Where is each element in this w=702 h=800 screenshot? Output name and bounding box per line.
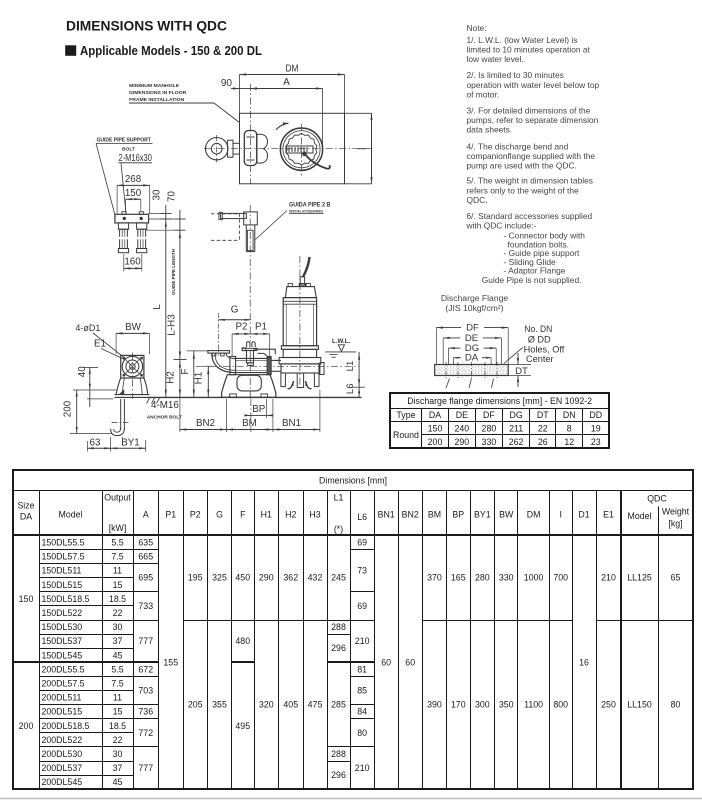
svg-text:BN1: BN1 [282, 418, 301, 429]
svg-text:736: 736 [138, 707, 153, 717]
svg-text:325: 325 [212, 573, 227, 583]
svg-text:DA: DA [465, 353, 479, 364]
svg-text:200DL511: 200DL511 [42, 693, 82, 703]
svg-text:73: 73 [357, 566, 367, 576]
svg-text:BOLT: BOLT [122, 147, 135, 153]
svg-text:L: L [152, 304, 163, 310]
svg-text:320: 320 [259, 700, 274, 710]
svg-text:GUIDE PIPE LENGTH: GUIDE PIPE LENGTH [171, 249, 176, 295]
svg-text:BW: BW [125, 322, 142, 333]
svg-text:200: 200 [428, 437, 443, 447]
svg-text:Discharge flange dimensions [m: Discharge flange dimensions [mm] - EN 10… [407, 396, 592, 406]
svg-text:695: 695 [138, 573, 153, 583]
svg-text:P1: P1 [165, 510, 176, 520]
svg-text:150DL55.5: 150DL55.5 [42, 537, 85, 547]
svg-text:195: 195 [188, 573, 203, 583]
svg-text:Round: Round [393, 430, 419, 440]
svg-text:H3: H3 [309, 510, 320, 520]
svg-text:432: 432 [308, 573, 323, 583]
svg-text:4-øD1: 4-øD1 [75, 323, 100, 333]
svg-text:165: 165 [451, 573, 466, 583]
svg-text:150: 150 [428, 424, 443, 434]
svg-text:pumps, refer to separate dimen: pumps, refer to separate dimension [467, 115, 599, 125]
svg-text:low water level.: low water level. [467, 54, 524, 64]
svg-text:DM: DM [286, 64, 299, 75]
svg-text:Dimensions [mm]: Dimensions [mm] [319, 476, 387, 486]
svg-text:Guide Pipe is not supplied.: Guide Pipe is not supplied. [482, 275, 582, 285]
svg-text:296: 296 [331, 770, 346, 780]
svg-text:210: 210 [601, 573, 616, 583]
svg-text:200: 200 [19, 721, 34, 731]
svg-text:H2: H2 [166, 371, 177, 384]
svg-text:operation with water level bel: operation with water level below top [467, 80, 600, 90]
svg-text:150DL515: 150DL515 [42, 580, 83, 590]
svg-text:H2: H2 [285, 510, 296, 520]
svg-text:[kg]: [kg] [668, 519, 682, 529]
svg-text:665: 665 [138, 552, 153, 562]
svg-text:BW: BW [499, 510, 514, 520]
svg-text:L-H3: L-H3 [167, 314, 178, 336]
svg-text:BN2: BN2 [196, 418, 215, 429]
svg-text:268: 268 [125, 174, 142, 185]
svg-text:800: 800 [553, 700, 568, 710]
svg-text:Applicable Models - 150 & 200: Applicable Models - 150 & 200 DL [80, 44, 262, 58]
svg-text:limited to 10 minutes operatio: limited to 10 minutes operation at [467, 45, 591, 55]
svg-text:8: 8 [567, 424, 572, 434]
svg-text:1100: 1100 [524, 700, 543, 710]
svg-text:3/. For detailed dimensions of: 3/. For detailed dimensions of the [467, 106, 591, 116]
svg-text:15: 15 [113, 580, 123, 590]
svg-text:777: 777 [138, 763, 153, 773]
svg-text:495: 495 [235, 721, 250, 731]
svg-text:5.5: 5.5 [111, 664, 123, 674]
svg-text:G: G [231, 305, 239, 316]
svg-text:19: 19 [591, 424, 601, 434]
svg-text:280: 280 [482, 424, 497, 434]
svg-text:DG: DG [509, 410, 522, 420]
svg-text:90: 90 [221, 78, 233, 89]
svg-text:LL125: LL125 [627, 573, 652, 583]
svg-text:12: 12 [564, 437, 574, 447]
svg-text:A: A [283, 77, 290, 88]
svg-text:6/. Standard accessories suppl: 6/. Standard accessories supplied [467, 211, 593, 221]
svg-text:BP: BP [252, 404, 266, 415]
svg-text:475: 475 [308, 700, 323, 710]
svg-text:288: 288 [331, 622, 346, 632]
svg-text:355: 355 [212, 700, 227, 710]
svg-text:refers only to the weight of t: refers only to the weight of the [467, 185, 580, 195]
svg-text:200DL545: 200DL545 [42, 777, 83, 787]
svg-text:(JIS 10kgf/cm²): (JIS 10kgf/cm²) [445, 303, 503, 313]
svg-text:DM: DM [527, 510, 541, 520]
svg-text:240: 240 [455, 424, 470, 434]
svg-text:L6: L6 [345, 383, 356, 394]
svg-text:7.5: 7.5 [111, 678, 123, 688]
svg-text:296: 296 [331, 643, 346, 653]
svg-text:[kW]: [kW] [109, 523, 127, 533]
svg-text:65: 65 [671, 573, 681, 583]
svg-text:80: 80 [357, 728, 367, 738]
svg-text:Note:: Note: [467, 23, 487, 33]
svg-text:45: 45 [113, 777, 123, 787]
svg-text:QDC: QDC [647, 494, 667, 504]
svg-text:200: 200 [63, 400, 74, 417]
svg-text:E1: E1 [603, 510, 614, 520]
svg-text:L.W.L.: L.W.L. [332, 338, 350, 345]
svg-text:BM: BM [242, 418, 257, 429]
svg-text:300: 300 [475, 700, 490, 710]
svg-text:11: 11 [113, 566, 122, 576]
svg-text:84: 84 [357, 707, 367, 717]
svg-text:ANCHOR BOLT: ANCHOR BOLT [147, 415, 182, 421]
svg-text:200DL530: 200DL530 [42, 749, 83, 759]
svg-text:450: 450 [235, 573, 250, 583]
svg-text:MINIMUM MANHOLE: MINIMUM MANHOLE [129, 83, 180, 89]
svg-text:pump are used with the QDC.: pump are used with the QDC. [467, 161, 577, 171]
svg-text:30: 30 [113, 749, 123, 759]
svg-text:150DL511: 150DL511 [42, 566, 82, 576]
svg-text:200DL518.5: 200DL518.5 [42, 721, 90, 731]
svg-text:P1: P1 [255, 322, 267, 333]
svg-text:GUIDE PIPE SUPPORT: GUIDE PIPE SUPPORT [97, 138, 152, 144]
svg-text:(*): (*) [334, 524, 343, 534]
svg-text:210: 210 [355, 763, 370, 773]
svg-text:160: 160 [124, 257, 141, 268]
svg-text:200DL537: 200DL537 [42, 763, 83, 773]
svg-text:of motor.: of motor. [467, 89, 500, 99]
svg-text:Holes, Off: Holes, Off [524, 344, 565, 354]
svg-text:BN1: BN1 [378, 510, 395, 520]
svg-text:F: F [180, 368, 191, 374]
svg-text:2-M16x30: 2-M16x30 [118, 153, 152, 164]
svg-text:672: 672 [138, 664, 153, 674]
svg-text:with QDC include:-: with QDC include:- [466, 221, 537, 231]
svg-text:L1: L1 [345, 361, 356, 372]
svg-text:DIMENSIONS IN FLOOR: DIMENSIONS IN FLOOR [129, 90, 186, 96]
svg-text:data sheets.: data sheets. [467, 125, 513, 135]
svg-text:80: 80 [671, 700, 681, 710]
svg-text:26: 26 [538, 437, 548, 447]
svg-text:P2: P2 [236, 322, 248, 333]
svg-text:DA: DA [20, 512, 32, 522]
svg-text:4-M16: 4-M16 [151, 400, 179, 411]
svg-text:2/. Is limited to 30 minutes: 2/. Is limited to 30 minutes [467, 70, 564, 80]
svg-text:362: 362 [283, 573, 298, 583]
svg-text:150DL530: 150DL530 [42, 622, 83, 632]
svg-text:DN: DN [563, 410, 576, 420]
svg-text:L1: L1 [334, 493, 344, 503]
svg-text:69: 69 [357, 537, 367, 547]
svg-text:150: 150 [19, 594, 34, 604]
svg-text:QDC.: QDC. [467, 195, 488, 205]
svg-text:150DL522: 150DL522 [42, 608, 83, 618]
svg-text:635: 635 [138, 537, 153, 547]
svg-text:250: 250 [601, 700, 616, 710]
svg-text:DE: DE [456, 410, 468, 420]
svg-text:200DL522: 200DL522 [42, 735, 83, 745]
svg-text:Ø DD: Ø DD [528, 334, 551, 344]
svg-text:700: 700 [553, 573, 568, 583]
svg-text:200DL515: 200DL515 [42, 707, 83, 717]
svg-text:DF: DF [483, 410, 495, 420]
svg-text:60: 60 [381, 657, 391, 667]
svg-text:DD: DD [589, 410, 602, 420]
svg-text:SPECIAL ACCESSORIES: SPECIAL ACCESSORIES [289, 208, 323, 213]
svg-text:390: 390 [427, 700, 442, 710]
svg-text:BN2: BN2 [402, 510, 419, 520]
svg-text:22: 22 [113, 608, 123, 618]
svg-text:290: 290 [455, 437, 470, 447]
svg-text:330: 330 [482, 437, 497, 447]
svg-text:DT: DT [537, 410, 549, 420]
svg-text:18.5: 18.5 [109, 594, 126, 604]
svg-text:262: 262 [509, 437, 524, 447]
svg-text:P2: P2 [190, 510, 201, 520]
svg-text:11: 11 [113, 693, 122, 703]
svg-text:200DL57.5: 200DL57.5 [42, 678, 85, 688]
svg-text:280: 280 [475, 573, 490, 583]
svg-text:405: 405 [283, 700, 298, 710]
svg-text:Center: Center [526, 354, 554, 364]
svg-text:60: 60 [405, 657, 415, 667]
svg-text:Type: Type [396, 410, 415, 420]
svg-text:D1: D1 [578, 510, 589, 520]
svg-text:LL150: LL150 [627, 700, 652, 710]
svg-text:7.5: 7.5 [111, 552, 123, 562]
svg-text:63: 63 [90, 438, 101, 449]
svg-text:A: A [143, 510, 149, 520]
svg-text:Discharge Flange: Discharge Flange [441, 293, 509, 303]
svg-text:H1: H1 [261, 510, 272, 520]
svg-text:BY1: BY1 [121, 438, 140, 449]
svg-text:777: 777 [138, 636, 153, 646]
svg-text:45: 45 [113, 650, 123, 660]
svg-text:703: 703 [138, 686, 153, 696]
svg-text:245: 245 [331, 573, 346, 583]
svg-text:BM: BM [428, 510, 441, 520]
svg-text:BP: BP [452, 510, 464, 520]
svg-text:23: 23 [591, 437, 601, 447]
svg-text:205: 205 [188, 700, 203, 710]
svg-text:H1: H1 [194, 371, 205, 384]
svg-text:BY1: BY1 [474, 510, 491, 520]
svg-text:290: 290 [259, 573, 274, 583]
svg-text:Size: Size [17, 501, 34, 511]
svg-text:Model: Model [628, 511, 652, 521]
svg-text:18.5: 18.5 [109, 721, 126, 731]
svg-text:69: 69 [357, 601, 367, 611]
svg-text:15: 15 [113, 707, 123, 717]
svg-text:Weight: Weight [662, 507, 690, 517]
svg-text:330: 330 [499, 573, 514, 583]
svg-text:4/. The discharge bend and: 4/. The discharge bend and [467, 141, 569, 151]
svg-text:200DL55.5: 200DL55.5 [42, 664, 85, 674]
svg-text:30: 30 [152, 189, 163, 200]
svg-text:Model: Model [59, 510, 83, 520]
svg-text:733: 733 [138, 601, 153, 611]
svg-text:70: 70 [167, 191, 178, 202]
svg-text:37: 37 [113, 636, 123, 646]
svg-text:5.5: 5.5 [111, 537, 123, 547]
svg-text:F: F [240, 510, 246, 520]
svg-text:285: 285 [331, 700, 346, 710]
svg-text:150DL57.5: 150DL57.5 [42, 552, 85, 562]
svg-text:DA: DA [429, 410, 441, 420]
svg-text:211: 211 [509, 424, 523, 434]
svg-text:22: 22 [538, 424, 548, 434]
svg-text:150DL545: 150DL545 [42, 650, 83, 660]
svg-text:480: 480 [235, 636, 250, 646]
svg-text:1000: 1000 [524, 573, 544, 583]
svg-text:companionflange supplied with: companionflange supplied with the [467, 151, 596, 161]
svg-text:370: 370 [427, 573, 442, 583]
svg-text:155: 155 [163, 657, 178, 667]
svg-text:Output: Output [104, 493, 131, 503]
svg-text:E1: E1 [94, 339, 106, 350]
svg-text:I: I [559, 510, 561, 520]
svg-text:150: 150 [125, 188, 142, 199]
svg-text:150DL537: 150DL537 [42, 636, 83, 646]
svg-text:1/. L.W.L. (low Water Level) i: 1/. L.W.L. (low Water Level) is [467, 35, 578, 45]
svg-text:No. DN: No. DN [524, 324, 552, 334]
svg-text:22: 22 [113, 735, 123, 745]
svg-text:G: G [216, 510, 223, 520]
svg-text:170: 170 [451, 700, 466, 710]
svg-text:85: 85 [357, 686, 367, 696]
svg-text:37: 37 [113, 763, 123, 773]
svg-text:350: 350 [499, 700, 514, 710]
svg-text:210: 210 [355, 636, 370, 646]
svg-text:30: 30 [113, 622, 123, 632]
svg-text:L6: L6 [357, 512, 367, 522]
svg-text:5/. The weight in dimension ta: 5/. The weight in dimension tables [467, 176, 593, 186]
svg-text:81: 81 [357, 664, 367, 674]
svg-text:772: 772 [138, 728, 153, 738]
svg-text:DIMENSIONS WITH QDC: DIMENSIONS WITH QDC [66, 19, 227, 35]
svg-text:FRAME INSTALLATION: FRAME INSTALLATION [129, 97, 184, 103]
svg-text:16: 16 [579, 657, 589, 667]
svg-text:288: 288 [331, 749, 346, 759]
svg-text:150DL518.5: 150DL518.5 [42, 594, 90, 604]
